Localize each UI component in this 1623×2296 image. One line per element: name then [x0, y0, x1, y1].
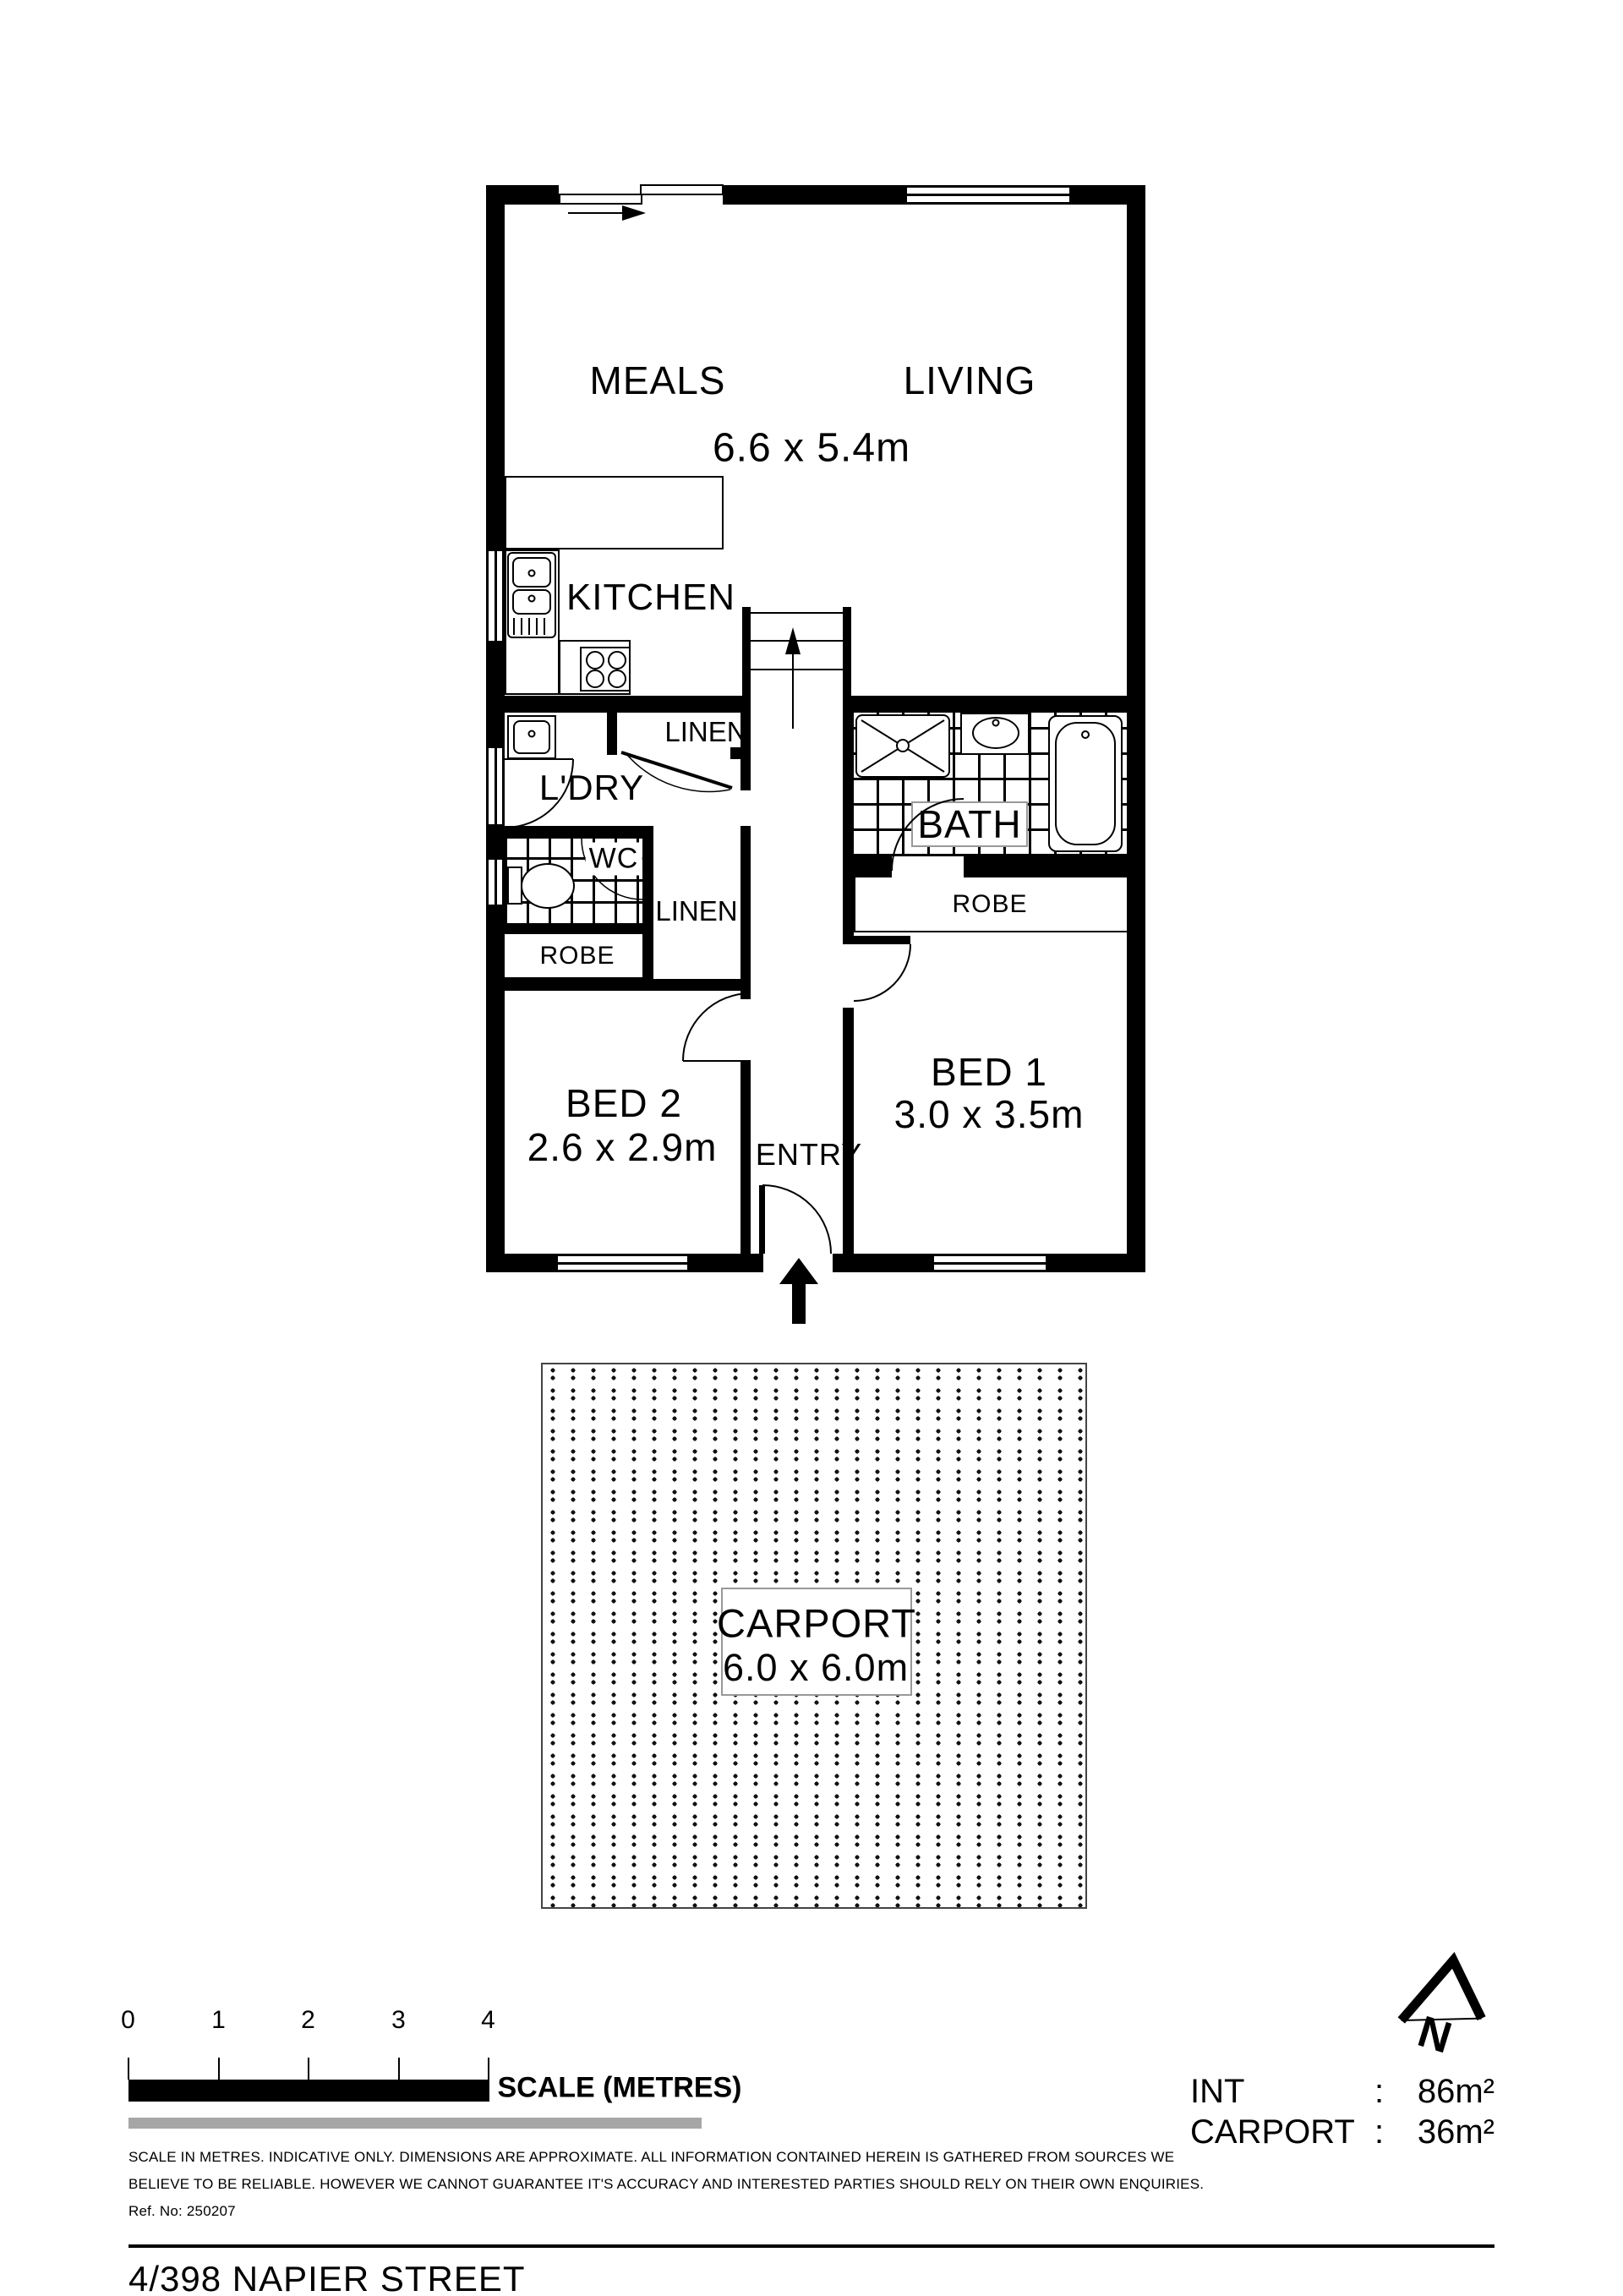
disclaimer-line-2: BELIEVE TO BE RELIABLE. HOWEVER WE CANNO… — [128, 2171, 1204, 2198]
scale-tick-2 — [308, 2058, 309, 2080]
area-carport-label: CARPORT — [1190, 2113, 1355, 2151]
area-row-carport: CARPORT : 36m² — [1190, 2113, 1495, 2154]
room-label-bed2: BED 2 — [566, 1080, 682, 1126]
area-row-int: INT : 86m² — [1190, 2073, 1495, 2113]
scale-tick-label-1: 1 — [211, 2006, 227, 2035]
room-label-bed1: BED 1 — [931, 1049, 1047, 1095]
room-label-robe-bed1: ROBE — [952, 890, 1027, 919]
scale-tick-0 — [128, 2058, 129, 2080]
room-label-entry: ENTRY — [756, 1137, 862, 1173]
scale-tick-1 — [218, 2058, 220, 2080]
room-label-meals: MEALS — [590, 358, 726, 403]
north-arrow-icon: N — [1396, 1949, 1498, 2067]
room-label-bath: BATH — [917, 801, 1021, 847]
area-carport-value: 36m² — [1418, 2113, 1495, 2151]
room-dims-bed1: 3.0 x 3.5m — [894, 1091, 1085, 1137]
page-title: 4/398 NAPIER STREET — [128, 2259, 526, 2296]
scale-tick-3 — [398, 2058, 400, 2080]
scale-tick-label-3: 3 — [391, 2006, 407, 2035]
scale-bar-label: SCALE (METRES) — [498, 2072, 742, 2105]
room-label-kitchen: KITCHEN — [566, 577, 735, 619]
floorplan-page: MEALS LIVING 6.6 x 5.4m KITCHEN LINEN L'… — [0, 0, 1623, 2296]
footer-rule — [128, 2244, 1495, 2248]
room-label-living: LIVING — [904, 358, 1036, 403]
carport-dims: 6.0 x 6.0m — [723, 1646, 909, 1690]
room-label-laundry: L'DRY — [539, 768, 644, 808]
room-label-wc: WC — [586, 843, 642, 876]
scale-tick-label-4: 4 — [481, 2006, 496, 2035]
area-carport-separator: : — [1374, 2113, 1384, 2151]
carport-label: CARPORT — [717, 1600, 916, 1647]
room-dims-living: 6.6 x 5.4m — [713, 425, 910, 472]
north-letter: N — [1413, 2007, 1457, 2063]
room-label-linen-lower: LINEN — [655, 895, 737, 927]
scale-tick-label-0: 0 — [121, 2006, 136, 2035]
scale-tick-4 — [488, 2058, 489, 2080]
area-int-label: INT — [1190, 2073, 1244, 2111]
disclaimer-ref: Ref. No: 250207 — [128, 2198, 1204, 2225]
room-label-robe-bed2: ROBE — [539, 942, 615, 970]
room-label-linen-upper: LINEN — [664, 716, 746, 748]
area-int-separator: : — [1374, 2073, 1384, 2111]
room-dims-bed2: 2.6 x 2.9m — [527, 1124, 718, 1170]
disclaimer-text: SCALE IN METRES. INDICATIVE ONLY. DIMENS… — [128, 2144, 1204, 2225]
disclaimer-line-1: SCALE IN METRES. INDICATIVE ONLY. DIMENS… — [128, 2144, 1204, 2171]
scale-bar — [128, 2080, 489, 2102]
gray-divider-bar — [128, 2118, 702, 2129]
area-int-value: 86m² — [1418, 2073, 1495, 2111]
scale-tick-label-2: 2 — [301, 2006, 316, 2035]
